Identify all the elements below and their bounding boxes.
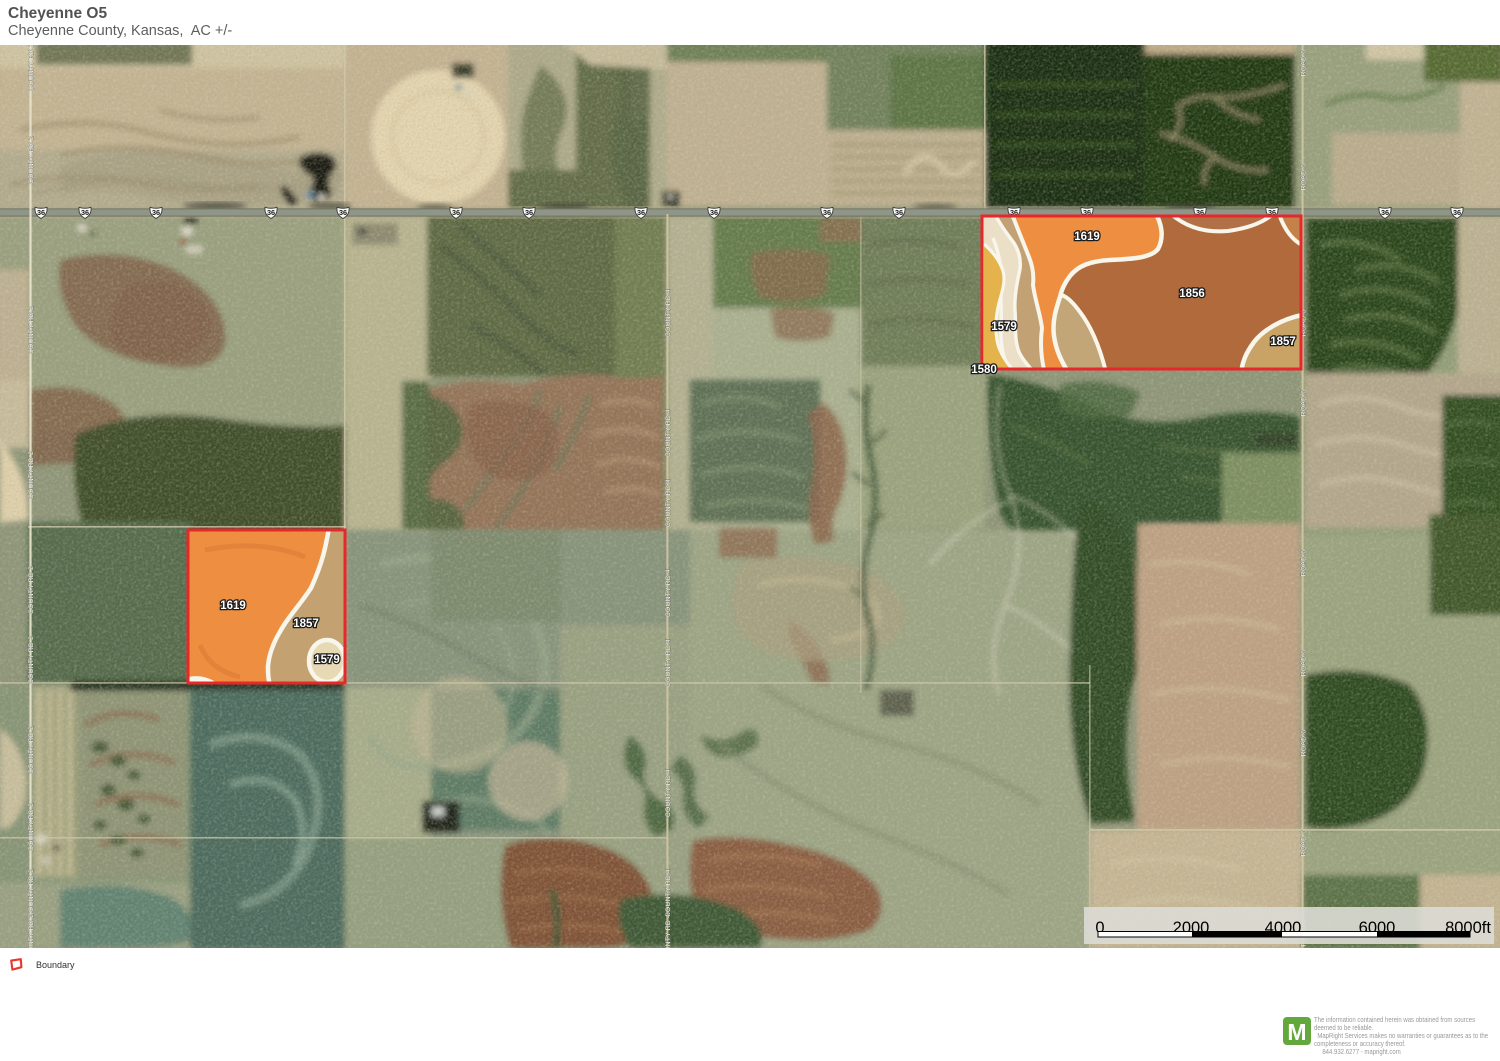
svg-text:COUNTY RD 2: COUNTY RD 2 xyxy=(28,726,35,774)
svg-text:COUNTY RD 4: COUNTY RD 4 xyxy=(665,569,672,617)
svg-text:COUNTY RD 2: COUNTY RD 2 xyxy=(28,869,35,917)
svg-text:COUNTY RD 2: COUNTY RD 2 xyxy=(28,45,35,91)
svg-text:1580: 1580 xyxy=(971,364,997,376)
svg-text:36: 36 xyxy=(637,208,645,217)
svg-text:ROAD 6: ROAD 6 xyxy=(1300,650,1307,677)
svg-text:1857: 1857 xyxy=(1270,336,1296,348)
svg-text:36: 36 xyxy=(1453,208,1461,217)
svg-text:ROAD 6: ROAD 6 xyxy=(1300,550,1307,577)
svg-text:COUNTY RD 4: COUNTY RD 4 xyxy=(665,479,672,527)
svg-text:COUNTY RD 2: COUNTY RD 2 xyxy=(28,566,35,614)
svg-text:COUNTY RD 4: COUNTY RD 4 xyxy=(665,289,672,337)
svg-text:1579: 1579 xyxy=(314,654,340,666)
svg-text:COUNTY RD 2: COUNTY RD 2 xyxy=(28,803,35,851)
svg-text:COUNTY RD 4: COUNTY RD 4 xyxy=(665,409,672,457)
svg-text:1619: 1619 xyxy=(1074,231,1100,243)
svg-text:COUNTY RD 4: COUNTY RD 4 xyxy=(665,639,672,687)
svg-text:COUNTY RD 4: COUNTY RD 4 xyxy=(665,869,672,917)
svg-text:36: 36 xyxy=(452,208,460,217)
svg-text:36: 36 xyxy=(267,208,275,217)
svg-text:36: 36 xyxy=(710,208,718,217)
svg-text:1579: 1579 xyxy=(991,321,1017,333)
svg-text:ROAD 6: ROAD 6 xyxy=(1300,730,1307,757)
svg-text:COUNTY RD 2: COUNTY RD 2 xyxy=(28,914,35,948)
svg-text:36: 36 xyxy=(895,208,903,217)
svg-text:36: 36 xyxy=(1381,208,1389,217)
svg-text:ROAD 6: ROAD 6 xyxy=(1300,164,1307,191)
svg-text:ROAD 6: ROAD 6 xyxy=(1300,390,1307,417)
svg-text:36: 36 xyxy=(81,208,89,217)
svg-text:ROAD 6: ROAD 6 xyxy=(1300,50,1307,77)
svg-text:ROAD 6: ROAD 6 xyxy=(1300,830,1307,857)
svg-text:COUNTY RD 2: COUNTY RD 2 xyxy=(28,451,35,499)
svg-text:COUNTY RD 2: COUNTY RD 2 xyxy=(28,636,35,684)
svg-text:COUNTY RD 2: COUNTY RD 2 xyxy=(28,306,35,354)
svg-text:1619: 1619 xyxy=(220,600,246,612)
svg-text:36: 36 xyxy=(339,208,347,217)
svg-text:1857: 1857 xyxy=(293,618,319,630)
svg-text:COUNTY RD 4: COUNTY RD 4 xyxy=(665,769,672,817)
svg-text:COUNTY RD 4: COUNTY RD 4 xyxy=(665,914,672,948)
svg-text:COUNTY RD 2: COUNTY RD 2 xyxy=(28,136,35,184)
svg-text:1856: 1856 xyxy=(1179,288,1205,300)
svg-text:36: 36 xyxy=(152,208,160,217)
svg-text:36: 36 xyxy=(823,208,831,217)
svg-text:36: 36 xyxy=(525,208,533,217)
svg-text:36: 36 xyxy=(37,208,45,217)
